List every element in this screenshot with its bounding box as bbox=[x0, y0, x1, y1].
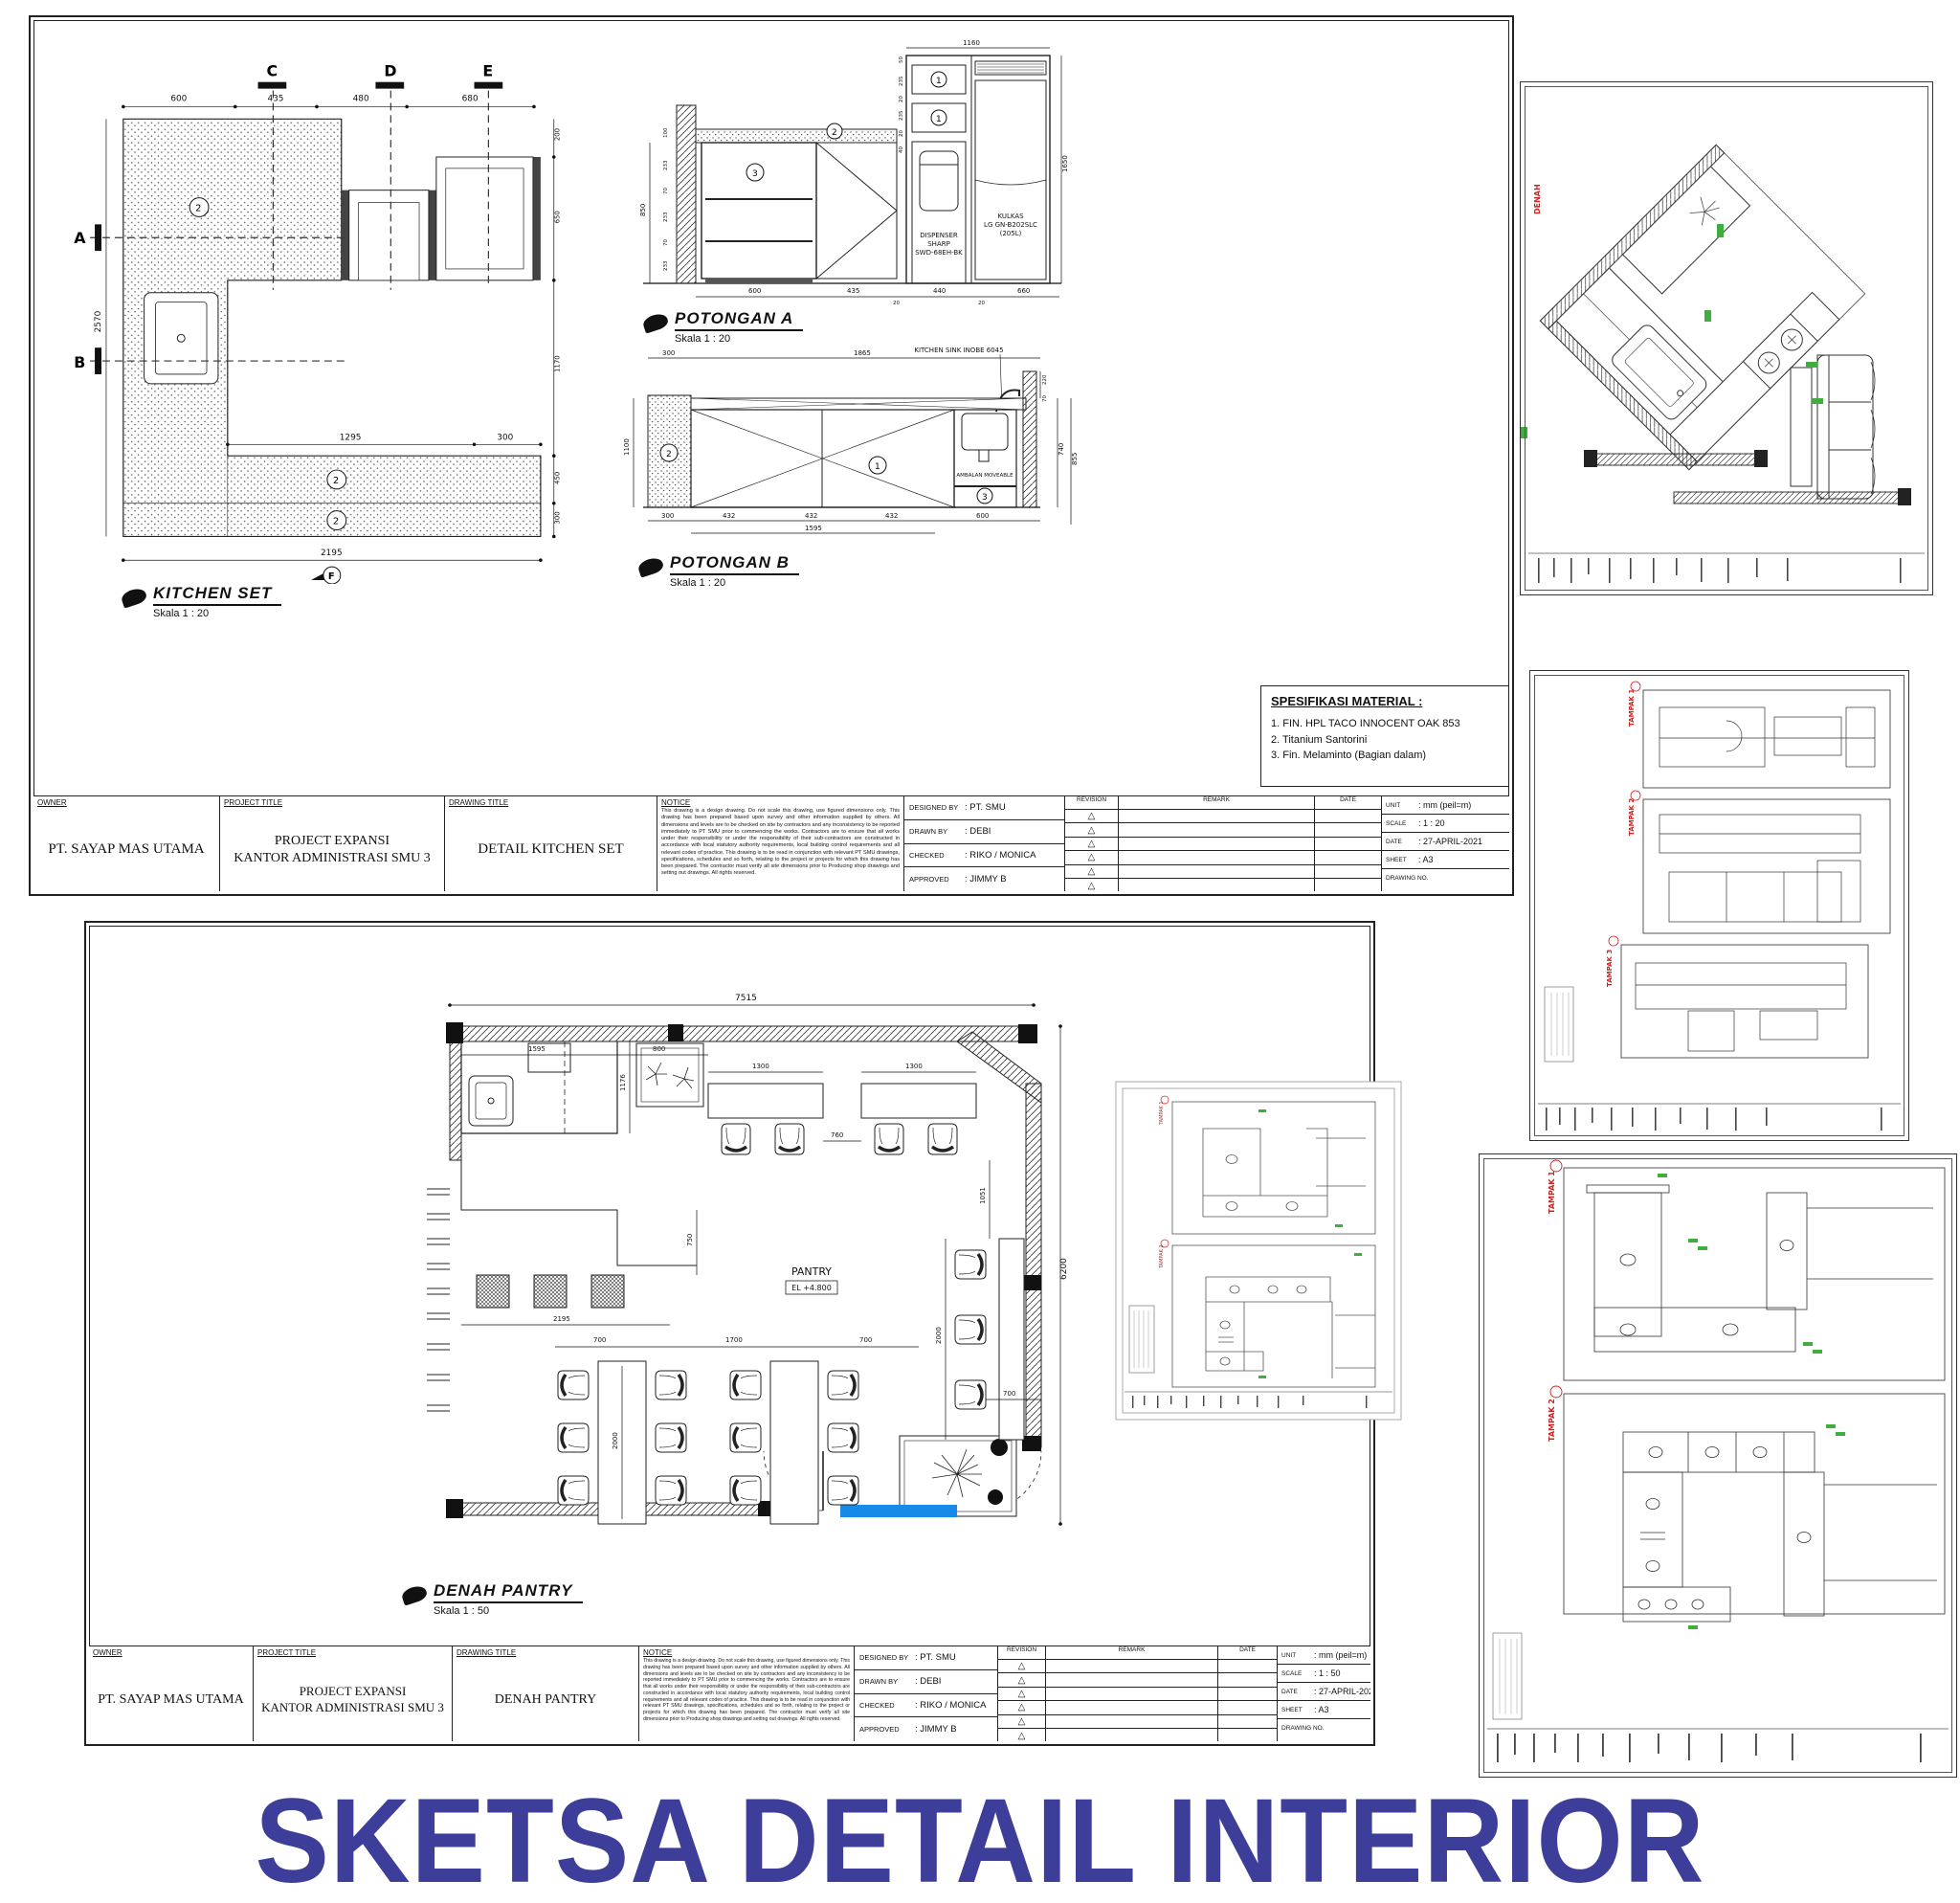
bottom-dims: 300 432 432 432 600 1595 bbox=[661, 512, 989, 532]
revision-triangle: △ bbox=[998, 1673, 1045, 1687]
sink-label: KITCHEN SINK INOBE 6045 bbox=[914, 347, 1003, 354]
wall bbox=[1023, 371, 1036, 507]
tb-project-line1: PROJECT EXPANSI bbox=[275, 833, 390, 850]
tb-approved-label: APPROVED bbox=[859, 1725, 915, 1734]
titleblock-sheet2: OWNER PT. SAYAP MAS UTAMA PROJECT TITLE … bbox=[89, 1646, 1370, 1741]
stools bbox=[477, 1275, 624, 1308]
tb-revision-cell: REVISION △ △ △ △ △ △ bbox=[1065, 796, 1119, 891]
inset-tampak-sheet: TAMPAK 1 TAMPAK 2 bbox=[1479, 1153, 1957, 1778]
appliance-labels: DISPENSER SHARP SWD-68EH-BK KULKAS LG GN… bbox=[915, 213, 1037, 257]
svg-text:2: 2 bbox=[195, 203, 201, 213]
dim: 700 bbox=[1003, 1390, 1015, 1398]
svg-text:432: 432 bbox=[885, 512, 898, 520]
caption-scale: Skala 1 : 20 bbox=[670, 577, 799, 589]
revision-triangle: △ bbox=[998, 1688, 1045, 1701]
tb-date-label: DATE bbox=[1386, 839, 1418, 845]
sofa bbox=[1791, 355, 1875, 499]
svg-text:TAMPAK 2: TAMPAK 2 bbox=[1628, 798, 1636, 836]
cabinet-row bbox=[691, 410, 954, 507]
plant-box bbox=[636, 1043, 703, 1107]
tb-project-line2: KANTOR ADMINISTRASI SMU 3 bbox=[234, 850, 431, 867]
blue-marker bbox=[840, 1505, 957, 1517]
dim: 600 bbox=[170, 95, 187, 104]
tb-meta-cell: UNIT: mm (peil=m) SCALE: 1 : 50 DATE: 27… bbox=[1278, 1646, 1370, 1741]
section-letter-d: D bbox=[384, 62, 396, 80]
revision-triangle: △ bbox=[998, 1715, 1045, 1729]
dim: 700 bbox=[859, 1336, 872, 1344]
section-letter-c: C bbox=[266, 62, 278, 80]
svg-text:50: 50 bbox=[899, 56, 904, 63]
dim: 1700 bbox=[725, 1336, 743, 1344]
tb-revision-label: REVISION bbox=[1065, 796, 1118, 810]
svg-text:1: 1 bbox=[875, 462, 880, 472]
tags: 2 1 3 bbox=[660, 444, 992, 504]
caption-title: POTONGAN A bbox=[675, 309, 803, 331]
svg-text:20: 20 bbox=[899, 130, 904, 137]
dim: 2000 bbox=[935, 1327, 943, 1344]
svg-text:3: 3 bbox=[982, 493, 988, 503]
svg-text:2: 2 bbox=[666, 450, 672, 459]
cabinet-door-swing bbox=[816, 143, 897, 279]
tb-scale-label: SCALE bbox=[1281, 1670, 1314, 1677]
dim: 1295 bbox=[340, 433, 362, 442]
tb-unit-value: : mm (peil=m) bbox=[1418, 800, 1471, 810]
svg-text:2: 2 bbox=[832, 128, 837, 138]
dim: 850 bbox=[639, 204, 647, 216]
caption-scale: Skala 1 : 20 bbox=[153, 608, 281, 619]
caption-title: DENAH PANTRY bbox=[434, 1581, 583, 1603]
svg-text:3: 3 bbox=[752, 169, 758, 179]
dim: 7515 bbox=[735, 994, 757, 1003]
caption-scale: Skala 1 : 50 bbox=[434, 1605, 583, 1617]
titleblock-sheet1: OWNER PT. SAYAP MAS UTAMA PROJECT TITLE … bbox=[33, 795, 1509, 891]
caption-blob-icon bbox=[400, 1583, 429, 1605]
wall-tables bbox=[708, 1084, 976, 1118]
tb-remark-cell: REMARK bbox=[1119, 796, 1315, 891]
inset2-red-labels: TAMPAK 1 TAMPAK 2 TAMPAK 3 bbox=[1606, 682, 1640, 987]
titlestrip-ticks bbox=[1546, 1108, 1882, 1131]
tb-project-cell: PROJECT TITLE PROJECT EXPANSI KANTOR ADM… bbox=[254, 1646, 453, 1741]
unit-dim-stack: 50 235 20 235 20 40 bbox=[899, 56, 904, 153]
dim: 435 bbox=[267, 95, 283, 104]
dining-tables bbox=[598, 1361, 818, 1524]
tb-drawn-label: DRAWN BY bbox=[909, 827, 965, 836]
tb-remark-cell: REMARK bbox=[1046, 1646, 1218, 1741]
svg-text:440: 440 bbox=[933, 287, 946, 295]
cabinet-d bbox=[349, 190, 429, 280]
tb-drawing-cell: DRAWING TITLE DENAH PANTRY bbox=[453, 1646, 639, 1741]
caption-blob-icon bbox=[636, 555, 665, 577]
tb-drawn-value: : DEBI bbox=[915, 1676, 941, 1687]
dim: 800 bbox=[653, 1045, 665, 1053]
dim: 300 bbox=[554, 511, 562, 524]
revision-triangle: △ bbox=[1065, 879, 1118, 891]
svg-text:1595: 1595 bbox=[805, 525, 822, 532]
svg-text:SHARP: SHARP bbox=[927, 240, 950, 248]
kitchen-set-plan-drawing: C D E A B F 2 2 2 bbox=[55, 48, 576, 584]
dim: 1051 bbox=[979, 1187, 987, 1204]
svg-text:233: 233 bbox=[663, 160, 669, 170]
spec-title: SPESIFIKASI MATERIAL : bbox=[1271, 694, 1499, 708]
tb-scale-value: : 1 : 20 bbox=[1418, 818, 1445, 828]
dim: 70 bbox=[1042, 395, 1048, 402]
lower-walls bbox=[1584, 450, 1911, 505]
tb-project-cell: PROJECT TITLE PROJECT EXPANSI KANTOR ADM… bbox=[220, 796, 445, 891]
base-cabinet bbox=[702, 143, 816, 283]
svg-text:TAMPAK 1: TAMPAK 1 bbox=[1548, 1171, 1556, 1214]
rotated-room bbox=[1540, 145, 1864, 469]
svg-text:TAMPAK 1: TAMPAK 1 bbox=[1628, 689, 1636, 727]
tb-unit-label: UNIT bbox=[1386, 802, 1418, 809]
tb-notice-label: NOTICE bbox=[639, 1646, 854, 1657]
revision-triangle: △ bbox=[1065, 838, 1118, 851]
dim: 740 bbox=[1058, 443, 1065, 456]
svg-text:PANTRY: PANTRY bbox=[791, 1265, 832, 1278]
tb-meta-cell: UNIT: mm (peil=m) SCALE: 1 : 20 DATE: 27… bbox=[1382, 796, 1509, 891]
tb-date-col-label: DATE bbox=[1218, 1646, 1277, 1660]
dim: 1300 bbox=[905, 1063, 923, 1070]
sheet-denah-pantry: PANTRY EL +4.800 bbox=[84, 921, 1375, 1746]
caption-title: KITCHEN SET bbox=[153, 584, 281, 606]
tb-designed-value: : PT. SMU bbox=[965, 802, 1006, 813]
spec-material-box: SPESIFIKASI MATERIAL : 1. FIN. HPL TACO … bbox=[1260, 685, 1509, 787]
worktop bbox=[691, 398, 1026, 410]
svg-text:TAMPAK 2: TAMPAK 2 bbox=[1548, 1399, 1556, 1442]
dim: 680 bbox=[462, 95, 479, 104]
dim: 855 bbox=[1071, 453, 1079, 465]
sheet-detail-kitchen-set: C D E A B F 2 2 2 bbox=[29, 15, 1514, 896]
wall-right bbox=[1026, 1084, 1041, 1447]
tb-project-line1: PROJECT EXPANSI bbox=[300, 1684, 407, 1699]
svg-text:1: 1 bbox=[936, 115, 942, 124]
inset1-drawing: DENAH bbox=[1521, 82, 1932, 594]
dim: 1176 bbox=[619, 1074, 627, 1091]
svg-text:KULKAS: KULKAS bbox=[997, 213, 1024, 220]
tb-project-line2: KANTOR ADMINISTRASI SMU 3 bbox=[261, 1700, 444, 1715]
tb-revision-cell: REVISION △ △ △ △ △ △ bbox=[998, 1646, 1046, 1741]
tb-date-value: : 27-APRIL-2021 bbox=[1314, 1687, 1370, 1696]
planter-tree bbox=[900, 1436, 1016, 1516]
svg-text:2: 2 bbox=[333, 476, 339, 486]
section-letter-b: B bbox=[74, 353, 85, 371]
tb-drawingno-label: DRAWING NO. bbox=[1386, 875, 1429, 882]
tb-designed-label: DESIGNED BY bbox=[909, 803, 965, 812]
tb-designed-label: DESIGNED BY bbox=[859, 1653, 915, 1662]
wall-left bbox=[450, 1041, 461, 1160]
tb-revision-label: REVISION bbox=[998, 1646, 1045, 1660]
dim: 300 bbox=[497, 433, 513, 442]
revision-triangle: △ bbox=[1065, 823, 1118, 837]
revision-triangle: △ bbox=[1065, 810, 1118, 823]
inset1-red-label: DENAH bbox=[1533, 184, 1542, 214]
page: C D E A B F 2 2 2 bbox=[0, 0, 1960, 1903]
dim: 6200 bbox=[1059, 1258, 1069, 1280]
tb-owner-label: OWNER bbox=[33, 796, 219, 807]
titlestrip-ticks bbox=[1497, 1734, 1922, 1762]
dim: 450 bbox=[554, 472, 562, 484]
svg-text:233: 233 bbox=[663, 260, 669, 271]
tb-drawing-label: DRAWING TITLE bbox=[453, 1646, 638, 1657]
svg-text:DISPENSER: DISPENSER bbox=[920, 232, 958, 239]
countertop bbox=[696, 129, 897, 143]
dim: 1300 bbox=[752, 1063, 769, 1070]
revision-triangle: △ bbox=[998, 1701, 1045, 1714]
svg-text:2: 2 bbox=[333, 517, 339, 527]
svg-text:233: 233 bbox=[663, 212, 669, 222]
dim: 300 bbox=[662, 349, 675, 357]
revision-triangle: △ bbox=[1065, 865, 1118, 879]
wall bbox=[677, 105, 696, 283]
dim: 480 bbox=[353, 95, 369, 104]
tb-drawing-cell: DRAWING TITLE DETAIL KITCHEN SET bbox=[445, 796, 657, 891]
tb-sheet-label: SHEET bbox=[1386, 857, 1418, 863]
svg-text:20: 20 bbox=[899, 96, 904, 102]
tb-project-label: PROJECT TITLE bbox=[220, 796, 444, 807]
potongan-b-caption: POTONGAN B Skala 1 : 20 bbox=[638, 553, 799, 589]
tb-drawn-value: : DEBI bbox=[965, 826, 991, 837]
inset-rotated-kitchen-plan: DENAH bbox=[1520, 81, 1933, 595]
tb-project-label: PROJECT TITLE bbox=[254, 1646, 452, 1657]
svg-text:432: 432 bbox=[723, 512, 735, 520]
tb-unit-value: : mm (peil=m) bbox=[1314, 1650, 1367, 1660]
denah-pantry-drawing: PANTRY EL +4.800 bbox=[421, 988, 1081, 1564]
tb-date-col-label: DATE bbox=[1315, 796, 1381, 810]
caption-title: POTONGAN B bbox=[670, 553, 799, 575]
dim: 650 bbox=[554, 211, 562, 223]
tb-sheet-label: SHEET bbox=[1281, 1707, 1314, 1713]
green-marks bbox=[1658, 1174, 1845, 1629]
potongan-a-drawing: DISPENSER SHARP SWD-68EH-BK KULKAS LG GN… bbox=[590, 38, 1069, 308]
left-louvers bbox=[427, 1189, 450, 1411]
denah-pantry-caption: DENAH PANTRY Skala 1 : 50 bbox=[402, 1581, 583, 1617]
tb-drawing-value: DENAH PANTRY bbox=[455, 1660, 636, 1739]
svg-text:435: 435 bbox=[847, 287, 859, 295]
tb-remark-label: REMARK bbox=[1046, 1646, 1217, 1660]
potongan-a-caption: POTONGAN A Skala 1 : 20 bbox=[643, 309, 803, 345]
dim: 750 bbox=[686, 1234, 694, 1246]
tb-notice-cell: NOTICE This drawing is a design drawing.… bbox=[639, 1646, 855, 1741]
tb-scale-label: SCALE bbox=[1386, 820, 1418, 827]
tb-notice-label: NOTICE bbox=[657, 796, 903, 807]
shelf-label: AMBALAN MOVEABLE bbox=[956, 473, 1013, 479]
tb-owner-value: PT. SAYAP MAS UTAMA bbox=[35, 810, 217, 889]
spec-item: 2. Titanium Santorini bbox=[1271, 732, 1499, 749]
inset3-red-labels: TAMPAK 1 TAMPAK 2 bbox=[1548, 1160, 1562, 1442]
tb-sheet-value: : A3 bbox=[1314, 1705, 1329, 1714]
section-letter-f: F bbox=[328, 571, 335, 582]
tb-people-cell: DESIGNED BY: PT. SMU DRAWN BY: DEBI CHEC… bbox=[855, 1646, 998, 1741]
tb-owner-cell: OWNER PT. SAYAP MAS UTAMA bbox=[89, 1646, 254, 1741]
dim: 1595 bbox=[528, 1045, 546, 1053]
mini-preview-sheet: TAMPAK 1 TAMPAK 2 bbox=[1115, 1081, 1402, 1421]
dim: 1650 bbox=[1061, 155, 1069, 172]
tb-notice-text: This drawing is a design drawing. Do not… bbox=[639, 1657, 854, 1724]
kitchen-set-caption: KITCHEN SET Skala 1 : 20 bbox=[122, 584, 281, 619]
svg-text:TAMPAK 1: TAMPAK 1 bbox=[1159, 1101, 1165, 1126]
tb-date-value: : 27-APRIL-2021 bbox=[1418, 837, 1482, 846]
left-dim-stack: 100 233 70 233 70 233 bbox=[663, 127, 669, 271]
tb-owner-value: PT. SAYAP MAS UTAMA bbox=[91, 1660, 251, 1739]
svg-text:600: 600 bbox=[976, 512, 989, 520]
dim: 200 bbox=[554, 128, 562, 141]
tb-approved-value: : JIMMY B bbox=[965, 874, 1007, 884]
tb-checked-label: CHECKED bbox=[859, 1701, 915, 1710]
tb-notice-cell: NOTICE This drawing is a design drawing.… bbox=[657, 796, 904, 891]
tb-drawing-label: DRAWING TITLE bbox=[445, 796, 657, 807]
elevation-linework bbox=[1636, 707, 1875, 1051]
svg-text:235: 235 bbox=[899, 110, 904, 121]
dim: 2195 bbox=[321, 549, 343, 558]
dim: 2570 bbox=[94, 310, 103, 332]
dim: 1160 bbox=[963, 39, 980, 47]
dim: 2000 bbox=[612, 1432, 619, 1449]
svg-text:600: 600 bbox=[748, 287, 761, 295]
inset2-drawing: TAMPAK 1 TAMPAK 2 TAMPAK 3 bbox=[1530, 671, 1908, 1140]
tampak2-linework bbox=[1623, 1432, 1937, 1622]
dim: 1170 bbox=[554, 355, 562, 372]
tb-owner-label: OWNER bbox=[89, 1646, 253, 1657]
svg-text:70: 70 bbox=[663, 188, 669, 194]
tb-notice-text: This drawing is a design drawing. Do not… bbox=[657, 807, 903, 879]
svg-text:432: 432 bbox=[805, 512, 817, 520]
tb-owner-cell: OWNER PT. SAYAP MAS UTAMA bbox=[33, 796, 220, 891]
svg-text:LG GN-B202SLC: LG GN-B202SLC bbox=[984, 221, 1037, 229]
tb-scale-value: : 1 : 50 bbox=[1314, 1668, 1341, 1678]
inset3-drawing: TAMPAK 1 TAMPAK 2 bbox=[1480, 1154, 1956, 1777]
section-letter-a: A bbox=[74, 229, 86, 247]
tb-people-cell: DESIGNED BY: PT. SMU DRAWN BY: DEBI CHEC… bbox=[904, 796, 1065, 891]
tb-checked-value: : RIKO / MONICA bbox=[915, 1700, 986, 1711]
svg-text:235: 235 bbox=[899, 76, 904, 86]
svg-text:40: 40 bbox=[899, 146, 904, 153]
tb-drawingno-label: DRAWING NO. bbox=[1281, 1725, 1325, 1732]
cabinet-e bbox=[436, 157, 533, 280]
inset-elevations-sheet: TAMPAK 1 TAMPAK 2 TAMPAK 3 bbox=[1529, 670, 1909, 1141]
tb-remark-label: REMARK bbox=[1119, 796, 1314, 810]
caption-blob-icon bbox=[641, 311, 670, 333]
page-title: SKETSA DETAIL INTERIOR bbox=[0, 1772, 1960, 1903]
revision-triangle: △ bbox=[998, 1729, 1045, 1741]
svg-text:300: 300 bbox=[661, 512, 674, 520]
tb-drawn-label: DRAWN BY bbox=[859, 1677, 915, 1686]
svg-text:100: 100 bbox=[663, 127, 669, 138]
spec-item: 1. FIN. HPL TACO INNOCENT OAK 853 bbox=[1271, 716, 1499, 732]
tampak1-linework bbox=[1587, 1185, 1933, 1352]
spec-item: 3. Fin. Melaminto (Bagian dalam) bbox=[1271, 748, 1499, 764]
tb-date-cell: DATE bbox=[1218, 1646, 1278, 1741]
sink bbox=[145, 293, 218, 384]
side-bench bbox=[999, 1239, 1024, 1440]
svg-text:70: 70 bbox=[663, 239, 669, 246]
tb-unit-label: UNIT bbox=[1281, 1652, 1314, 1659]
svg-text:TAMPAK 3: TAMPAK 3 bbox=[1606, 950, 1614, 987]
revision-triangle: △ bbox=[1065, 851, 1118, 864]
svg-text:EL +4.800: EL +4.800 bbox=[791, 1284, 832, 1292]
tb-date-cell: DATE bbox=[1315, 796, 1382, 891]
tb-approved-label: APPROVED bbox=[909, 875, 965, 884]
caption-blob-icon bbox=[120, 586, 148, 608]
wall-top bbox=[450, 1026, 1034, 1041]
dim: 220 bbox=[1042, 374, 1048, 385]
tb-designed-value: : PT. SMU bbox=[915, 1652, 956, 1663]
section-letter-e: E bbox=[482, 62, 493, 80]
tb-sheet-value: : A3 bbox=[1418, 855, 1434, 864]
svg-text:20: 20 bbox=[978, 301, 985, 306]
tb-checked-label: CHECKED bbox=[909, 851, 965, 860]
tb-checked-value: : RIKO / MONICA bbox=[965, 850, 1036, 861]
dim: 700 bbox=[593, 1336, 606, 1344]
dim: 760 bbox=[831, 1131, 843, 1139]
svg-text:1: 1 bbox=[936, 77, 942, 86]
dim: 1100 bbox=[623, 438, 631, 456]
dim: 2195 bbox=[553, 1315, 570, 1323]
tb-date-label: DATE bbox=[1281, 1689, 1314, 1695]
svg-text:20: 20 bbox=[893, 301, 900, 306]
dim: 1865 bbox=[854, 349, 871, 357]
svg-text:660: 660 bbox=[1017, 287, 1030, 295]
svg-text:TAMPAK 2: TAMPAK 2 bbox=[1159, 1244, 1165, 1269]
tb-approved-value: : JIMMY B bbox=[915, 1724, 957, 1735]
svg-text:(205L): (205L) bbox=[1000, 230, 1022, 237]
tb-drawing-value: DETAIL KITCHEN SET bbox=[447, 810, 655, 889]
svg-text:SWD-68EH-BK: SWD-68EH-BK bbox=[915, 249, 963, 257]
potongan-b-drawing: KITCHEN SINK INOBE 6045 AMBALAN MOVEABLE bbox=[590, 343, 1088, 542]
revision-triangle: △ bbox=[998, 1660, 1045, 1673]
titlestrip-ticks bbox=[1538, 558, 1902, 583]
room-label: PANTRY EL +4.800 bbox=[786, 1265, 837, 1294]
